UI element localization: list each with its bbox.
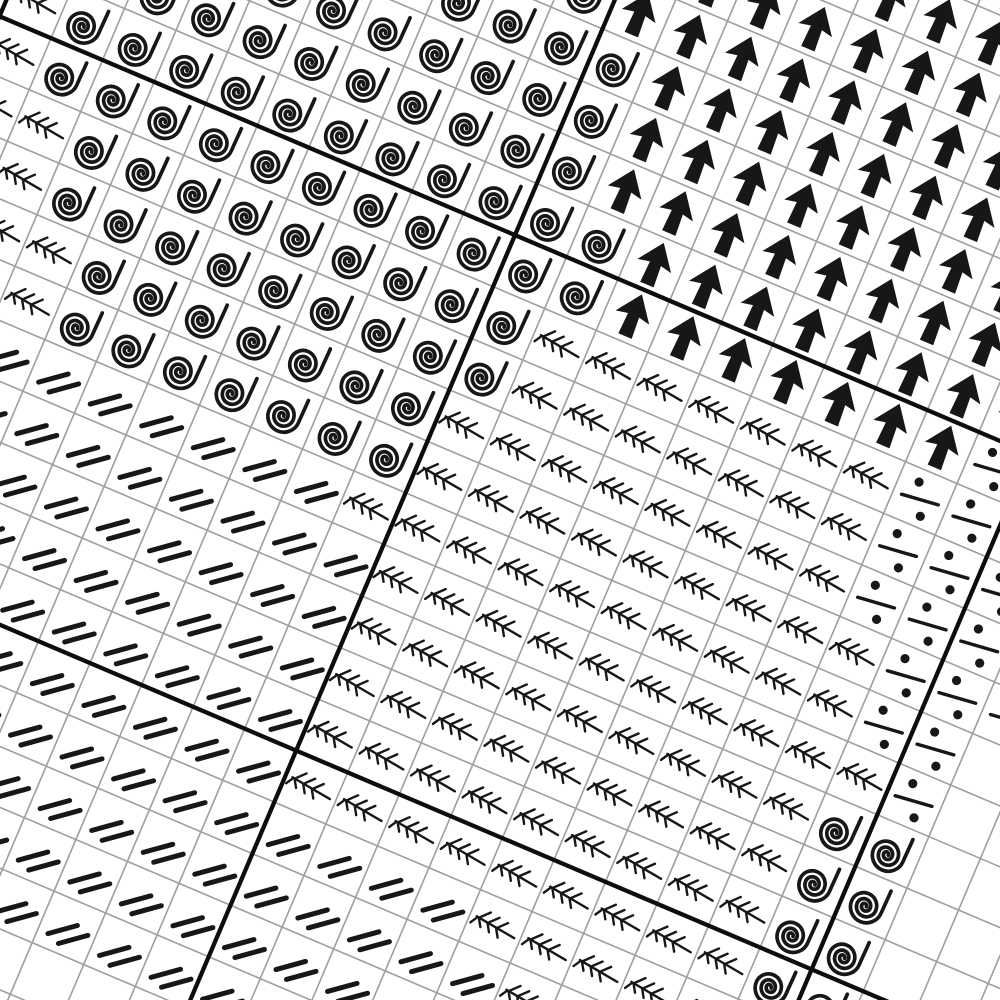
- arrow-up-icon: [630, 236, 681, 292]
- arrow-up-icon: [939, 367, 990, 423]
- feather-chevrons-icon: [571, 524, 622, 561]
- spiral-icon: [505, 247, 551, 297]
- double-slash-icon: [66, 438, 110, 475]
- double-slash-icon: [280, 651, 324, 688]
- feather-chevrons-icon: [0, 158, 47, 195]
- spiral-icon: [380, 255, 426, 305]
- spiral-icon: [867, 827, 913, 877]
- spiral-icon: [100, 197, 146, 247]
- feather-chevrons-icon: [527, 627, 578, 664]
- block-line-vertical: [637, 41, 1000, 1000]
- spiral-icon: [497, 122, 543, 172]
- feather-chevrons-icon: [733, 715, 784, 752]
- double-slash-icon: [30, 666, 74, 703]
- double-slash-icon: [221, 504, 265, 541]
- spiral-icon: [343, 57, 389, 107]
- spiral-icon: [314, 410, 360, 460]
- percent-icon: [954, 620, 1000, 672]
- arrow-up-icon: [755, 228, 806, 284]
- percent-icon: [946, 495, 997, 547]
- feather-chevrons-icon: [572, 950, 623, 987]
- spiral-icon: [307, 285, 353, 335]
- feather-chevrons-icon: [446, 532, 497, 569]
- arrow-up-icon: [894, 44, 945, 100]
- double-slash-icon: [251, 577, 295, 614]
- grid-line-vertical: [740, 85, 1000, 1000]
- double-slash-icon: [0, 821, 9, 858]
- feather-chevrons-icon: [439, 833, 490, 870]
- spiral-icon: [49, 175, 95, 225]
- feather-chevrons-icon: [739, 413, 790, 450]
- spiral-icon: [350, 182, 396, 232]
- double-slash-icon: [46, 916, 90, 953]
- double-slash-icon: [96, 512, 140, 549]
- double-slash-icon: [185, 732, 229, 769]
- feather-chevrons-icon: [608, 722, 659, 759]
- percent-icon: [859, 701, 910, 753]
- spiral-icon: [816, 805, 862, 855]
- double-slash-icon: [141, 835, 185, 872]
- arrow-up-icon: [687, 0, 738, 12]
- double-slash-icon: [90, 813, 134, 850]
- spiral-icon: [71, 124, 117, 174]
- grid-line-horizontal: [0, 304, 1000, 873]
- feather-chevrons-icon: [542, 877, 593, 914]
- grid-line-vertical: [0, 0, 278, 988]
- spiral-icon: [336, 358, 382, 408]
- double-slash-icon: [98, 938, 142, 975]
- arrow-up-icon: [644, 59, 695, 115]
- grid-line-vertical: [276, 0, 845, 1000]
- feather-chevrons-icon: [763, 788, 814, 825]
- spiral-icon: [233, 314, 279, 364]
- feather-chevrons-icon: [791, 435, 842, 472]
- arrow-up-icon: [887, 345, 938, 401]
- rotated-chart-plane: [0, 0, 1000, 1000]
- feather-chevrons-icon: [350, 613, 401, 650]
- feather-chevrons-icon: [0, 261, 3, 298]
- spiral-icon: [174, 168, 220, 218]
- arrow-up-icon: [989, 0, 1000, 18]
- feather-chevrons-icon: [461, 782, 512, 819]
- spiral-icon: [93, 72, 139, 122]
- feather-chevrons-icon: [497, 554, 548, 591]
- feather-chevrons-icon: [785, 736, 836, 773]
- spiral-icon: [269, 86, 315, 136]
- feather-chevrons-icon: [541, 450, 592, 487]
- arrow-up-icon: [725, 155, 776, 211]
- percent-icon: [910, 723, 961, 775]
- arrow-up-icon: [673, 133, 724, 189]
- double-slash-icon: [244, 879, 288, 916]
- feather-chevrons-icon: [563, 399, 614, 436]
- percent-icon: [924, 547, 975, 599]
- double-slash-icon: [169, 482, 213, 519]
- double-slash-icon: [74, 563, 118, 600]
- feather-chevrons-icon: [703, 641, 754, 678]
- feather-chevrons-icon: [372, 561, 423, 598]
- double-slash-icon: [0, 519, 15, 556]
- feather-chevrons-icon: [719, 891, 770, 928]
- spiral-icon: [182, 293, 228, 343]
- spiral-icon: [41, 50, 87, 100]
- double-slash-icon: [148, 533, 192, 570]
- spiral-icon: [255, 263, 301, 313]
- double-slash-icon: [37, 365, 81, 402]
- double-slash-icon: [163, 783, 207, 820]
- arrow-up-icon: [850, 147, 901, 203]
- double-slash-icon: [266, 827, 310, 864]
- double-slash-icon: [222, 930, 266, 967]
- arrow-up-icon: [953, 191, 1000, 247]
- feather-chevrons-icon: [718, 465, 769, 502]
- arrow-up-icon: [659, 309, 710, 365]
- spiral-icon: [794, 857, 840, 907]
- spiral-icon: [364, 5, 410, 55]
- double-slash-icon: [207, 680, 251, 717]
- feather-chevrons-icon: [696, 516, 747, 553]
- arrow-up-icon: [733, 280, 784, 336]
- feather-chevrons-icon: [416, 458, 467, 495]
- feather-chevrons-icon: [594, 899, 645, 936]
- arrow-up-icon: [747, 103, 798, 159]
- double-slash-icon: [273, 526, 317, 563]
- spiral-icon: [557, 269, 603, 319]
- double-slash-icon: [451, 966, 495, 1000]
- spiral-icon: [593, 41, 639, 91]
- spiral-icon: [549, 144, 595, 194]
- feather-chevrons-icon: [689, 818, 740, 855]
- arrow-up-icon: [762, 353, 813, 409]
- feather-chevrons-icon: [557, 700, 608, 737]
- feather-chevrons-icon: [747, 538, 798, 575]
- double-slash-icon: [229, 629, 273, 666]
- double-slash-icon: [318, 849, 362, 886]
- spiral-icon: [416, 27, 462, 77]
- feather-chevrons-icon: [674, 568, 725, 605]
- arrow-up-icon: [842, 22, 893, 78]
- feather-chevrons-icon: [0, 210, 25, 247]
- feather-chevrons-icon: [513, 804, 564, 841]
- arrow-up-icon: [806, 250, 857, 306]
- spiral-icon: [772, 908, 818, 958]
- percent-icon: [895, 473, 946, 525]
- feather-chevrons-icon: [644, 494, 695, 531]
- feather-chevrons-icon: [4, 283, 55, 320]
- arrow-up-icon: [769, 51, 820, 107]
- feather-chevrons-icon: [533, 326, 584, 363]
- spiral-icon: [115, 21, 161, 71]
- percent-icon: [888, 775, 939, 827]
- double-slash-icon: [155, 658, 199, 695]
- feather-chevrons-icon: [578, 649, 629, 686]
- spiral-icon: [475, 174, 521, 224]
- double-slash-icon: [23, 541, 67, 578]
- arrow-up-icon: [901, 169, 952, 225]
- double-slash-icon: [171, 908, 215, 945]
- double-slash-icon: [326, 974, 370, 1000]
- double-slash-icon: [52, 615, 96, 652]
- spiral-icon: [247, 138, 293, 188]
- spiral-icon: [750, 960, 796, 1000]
- spiral-icon: [519, 71, 565, 121]
- feather-chevrons-icon: [600, 597, 651, 634]
- double-slash-icon: [421, 893, 465, 930]
- spiral-icon: [122, 146, 168, 196]
- spiral-icon: [468, 49, 514, 99]
- double-slash-icon: [296, 901, 340, 938]
- double-slash-icon: [140, 408, 184, 445]
- double-slash-icon: [377, 996, 421, 1000]
- feather-chevrons-icon: [564, 825, 615, 862]
- double-slash-icon: [0, 468, 37, 505]
- spiral-icon: [461, 350, 507, 400]
- spiral-icon: [541, 19, 587, 69]
- spiral-icon: [285, 336, 331, 386]
- feather-chevrons-icon: [667, 869, 718, 906]
- spiral-icon: [188, 0, 234, 41]
- spiral-icon: [263, 388, 309, 438]
- double-slash-icon: [0, 394, 7, 431]
- stitch-symbols-layer: [0, 0, 1000, 1000]
- double-slash-icon: [0, 894, 38, 931]
- double-slash-icon: [177, 607, 221, 644]
- spiral-icon: [424, 152, 470, 202]
- arrow-up-icon: [600, 162, 651, 218]
- double-slash-icon: [16, 843, 60, 880]
- spiral-icon: [578, 218, 624, 268]
- feather-chevrons-icon: [682, 693, 733, 730]
- arrow-up-icon: [865, 397, 916, 453]
- double-slash-icon: [193, 857, 237, 894]
- spiral-icon: [388, 380, 434, 430]
- arrow-up-icon: [916, 0, 967, 48]
- spiral-icon: [432, 277, 478, 327]
- feather-chevrons-icon: [593, 472, 644, 509]
- double-slash-icon: [347, 922, 391, 959]
- feather-chevrons-icon: [0, 85, 17, 122]
- feather-chevrons-icon: [843, 457, 894, 494]
- percent-icon: [932, 672, 983, 724]
- stitch-chart-viewport: [0, 0, 1000, 1000]
- feather-chevrons-icon: [697, 943, 748, 980]
- feather-chevrons-icon: [755, 663, 806, 700]
- feather-chevrons-icon: [432, 708, 483, 745]
- arrow-up-icon: [666, 8, 717, 64]
- arrow-up-icon: [909, 294, 960, 350]
- feather-chevrons-icon: [646, 921, 697, 958]
- arrow-up-icon: [695, 81, 746, 137]
- arrow-up-icon: [717, 30, 768, 86]
- double-slash-icon: [201, 982, 245, 1000]
- feather-chevrons-icon: [402, 635, 453, 672]
- arrow-up-icon: [681, 258, 732, 314]
- feather-chevrons-icon: [807, 685, 858, 722]
- double-slash-icon: [1, 593, 45, 630]
- double-slash-icon: [126, 585, 170, 622]
- percent-icon: [851, 576, 902, 628]
- double-slash-icon: [133, 710, 177, 747]
- spiral-icon: [571, 93, 617, 143]
- grid-line-vertical: [637, 41, 1000, 1000]
- feather-chevrons-icon: [18, 107, 69, 144]
- grid-line-horizontal: [0, 407, 1000, 976]
- arrow-up-icon: [776, 176, 827, 232]
- spiral-icon: [446, 100, 492, 150]
- feather-chevrons-icon: [616, 847, 667, 884]
- feather-chevrons-icon: [511, 377, 562, 414]
- spiral-icon: [845, 878, 891, 928]
- spiral-icon: [160, 344, 206, 394]
- spiral-icon: [438, 0, 484, 25]
- feather-chevrons-icon: [836, 758, 887, 795]
- spiral-icon: [240, 13, 286, 63]
- feather-chevrons-icon: [821, 508, 872, 545]
- spiral-icon: [79, 249, 125, 299]
- feather-chevrons-icon: [491, 855, 542, 892]
- feather-chevrons-icon: [336, 789, 387, 826]
- spiral-icon: [372, 130, 418, 180]
- spiral-icon: [329, 233, 375, 283]
- arrow-up-icon: [791, 0, 842, 56]
- arrow-up-icon: [798, 125, 849, 181]
- feather-chevrons-icon: [438, 407, 489, 444]
- feather-chevrons-icon: [26, 232, 77, 269]
- double-slash-icon: [274, 952, 318, 989]
- feather-chevrons-icon: [828, 633, 879, 670]
- arrow-up-icon: [931, 242, 982, 298]
- feather-chevrons-icon: [585, 347, 636, 384]
- spiral-icon: [489, 0, 535, 47]
- double-slash-icon: [88, 387, 132, 424]
- feather-chevrons-icon: [688, 391, 739, 428]
- feather-chevrons-icon: [660, 744, 711, 781]
- double-slash-icon: [149, 960, 193, 997]
- feather-chevrons-icon: [424, 583, 475, 620]
- double-slash-icon: [9, 718, 53, 755]
- spiral-icon: [299, 160, 345, 210]
- arrow-up-icon: [945, 66, 996, 122]
- feather-chevrons-icon: [741, 840, 792, 877]
- feather-chevrons-icon: [652, 619, 703, 656]
- spiral-icon: [483, 299, 529, 349]
- spiral-icon: [130, 271, 176, 321]
- feather-chevrons-icon: [535, 752, 586, 789]
- arrow-up-icon: [961, 316, 1000, 372]
- spiral-icon: [410, 328, 456, 378]
- spiral-icon: [63, 0, 109, 48]
- double-slash-icon: [119, 886, 163, 923]
- spiral-icon: [218, 64, 264, 114]
- spiral-icon: [802, 982, 848, 1000]
- double-slash-icon: [82, 688, 126, 725]
- double-slash-icon: [60, 740, 104, 777]
- arrow-up-icon: [608, 287, 659, 343]
- arrow-up-icon: [880, 220, 931, 276]
- feather-chevrons-icon: [475, 605, 526, 642]
- feather-chevrons-icon: [622, 546, 673, 583]
- feather-chevrons-icon: [0, 33, 39, 70]
- double-slash-icon: [0, 343, 29, 380]
- feather-chevrons-icon: [630, 671, 681, 708]
- double-slash-icon: [0, 644, 23, 681]
- feather-chevrons-icon: [388, 811, 439, 848]
- feather-chevrons-icon: [307, 716, 358, 753]
- spiral-icon: [366, 432, 412, 482]
- feather-chevrons-icon: [453, 657, 504, 694]
- feather-chevrons-icon: [410, 760, 461, 797]
- feather-chevrons-icon: [614, 421, 665, 458]
- arrow-up-icon: [814, 375, 865, 431]
- feather-chevrons-icon: [799, 560, 850, 597]
- double-slash-icon: [258, 702, 302, 739]
- spiral-icon: [824, 930, 870, 980]
- spiral-icon: [313, 0, 359, 33]
- arrow-up-icon: [858, 272, 909, 328]
- spiral-icon: [394, 79, 440, 129]
- arrow-up-icon: [711, 331, 762, 387]
- double-slash-icon: [68, 865, 112, 902]
- spiral-icon: [196, 116, 242, 166]
- feather-chevrons-icon: [505, 679, 556, 716]
- feather-chevrons-icon: [725, 590, 776, 627]
- double-slash-icon: [0, 696, 1, 733]
- arrow-up-icon: [828, 198, 879, 254]
- spiral-icon: [358, 307, 404, 357]
- feather-chevrons-icon: [380, 686, 431, 723]
- double-slash-icon: [199, 555, 243, 592]
- pattern-grid-svg: [0, 0, 1000, 1000]
- spiral-icon: [166, 43, 212, 93]
- arrow-up-icon: [836, 323, 887, 379]
- feather-chevrons-icon: [483, 730, 534, 767]
- double-slash-icon: [237, 754, 281, 791]
- double-slash-icon: [118, 460, 162, 497]
- feather-chevrons-icon: [521, 929, 572, 966]
- arrow-up-icon: [703, 206, 754, 262]
- double-slash-icon: [44, 490, 88, 527]
- feather-chevrons-icon: [469, 907, 520, 944]
- feather-chevrons-icon: [624, 972, 675, 1000]
- arrow-up-icon: [917, 419, 968, 475]
- feather-chevrons-icon: [711, 766, 762, 803]
- feather-chevrons-icon: [666, 443, 717, 480]
- double-slash-icon: [112, 761, 156, 798]
- percent-icon: [880, 650, 931, 702]
- spiral-icon: [321, 108, 367, 158]
- percent-icon: [873, 525, 924, 577]
- feather-chevrons-icon: [636, 369, 687, 406]
- spiral-icon: [108, 322, 154, 372]
- feather-chevrons-icon: [675, 994, 726, 1000]
- spiral-icon: [152, 219, 198, 269]
- spiral-icon: [144, 94, 190, 144]
- double-slash-icon: [0, 769, 31, 806]
- feather-chevrons-icon: [285, 768, 336, 805]
- arrow-up-icon: [820, 73, 871, 129]
- percent-icon: [968, 444, 1000, 496]
- feather-chevrons-icon: [638, 796, 689, 833]
- arrow-up-icon: [784, 301, 835, 357]
- spiral-icon: [291, 35, 337, 85]
- double-slash-icon: [399, 944, 443, 981]
- spiral-icon: [402, 204, 448, 254]
- arrow-up-icon: [923, 117, 974, 173]
- percent-icon: [902, 598, 953, 650]
- feather-chevrons-icon: [10, 0, 61, 19]
- double-slash-icon: [104, 636, 148, 673]
- feather-chevrons-icon: [549, 575, 600, 612]
